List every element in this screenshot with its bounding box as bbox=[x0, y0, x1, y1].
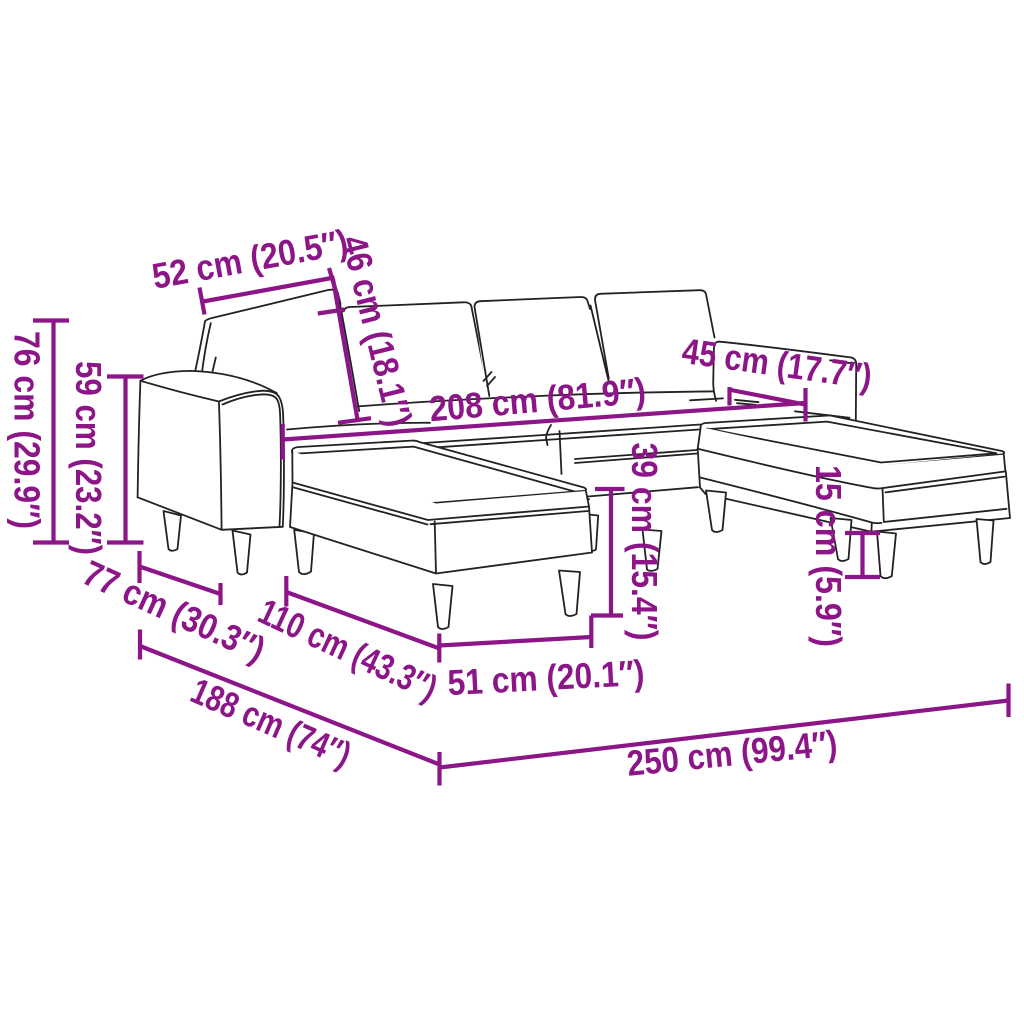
svg-text:59 cm (23.2″): 59 cm (23.2″) bbox=[68, 361, 109, 555]
svg-text:76 cm (29.9″): 76 cm (29.9″) bbox=[7, 331, 48, 529]
svg-text:15 cm (5.9″): 15 cm (5.9″) bbox=[808, 465, 849, 647]
svg-text:39 cm (15.4″): 39 cm (15.4″) bbox=[624, 443, 665, 641]
